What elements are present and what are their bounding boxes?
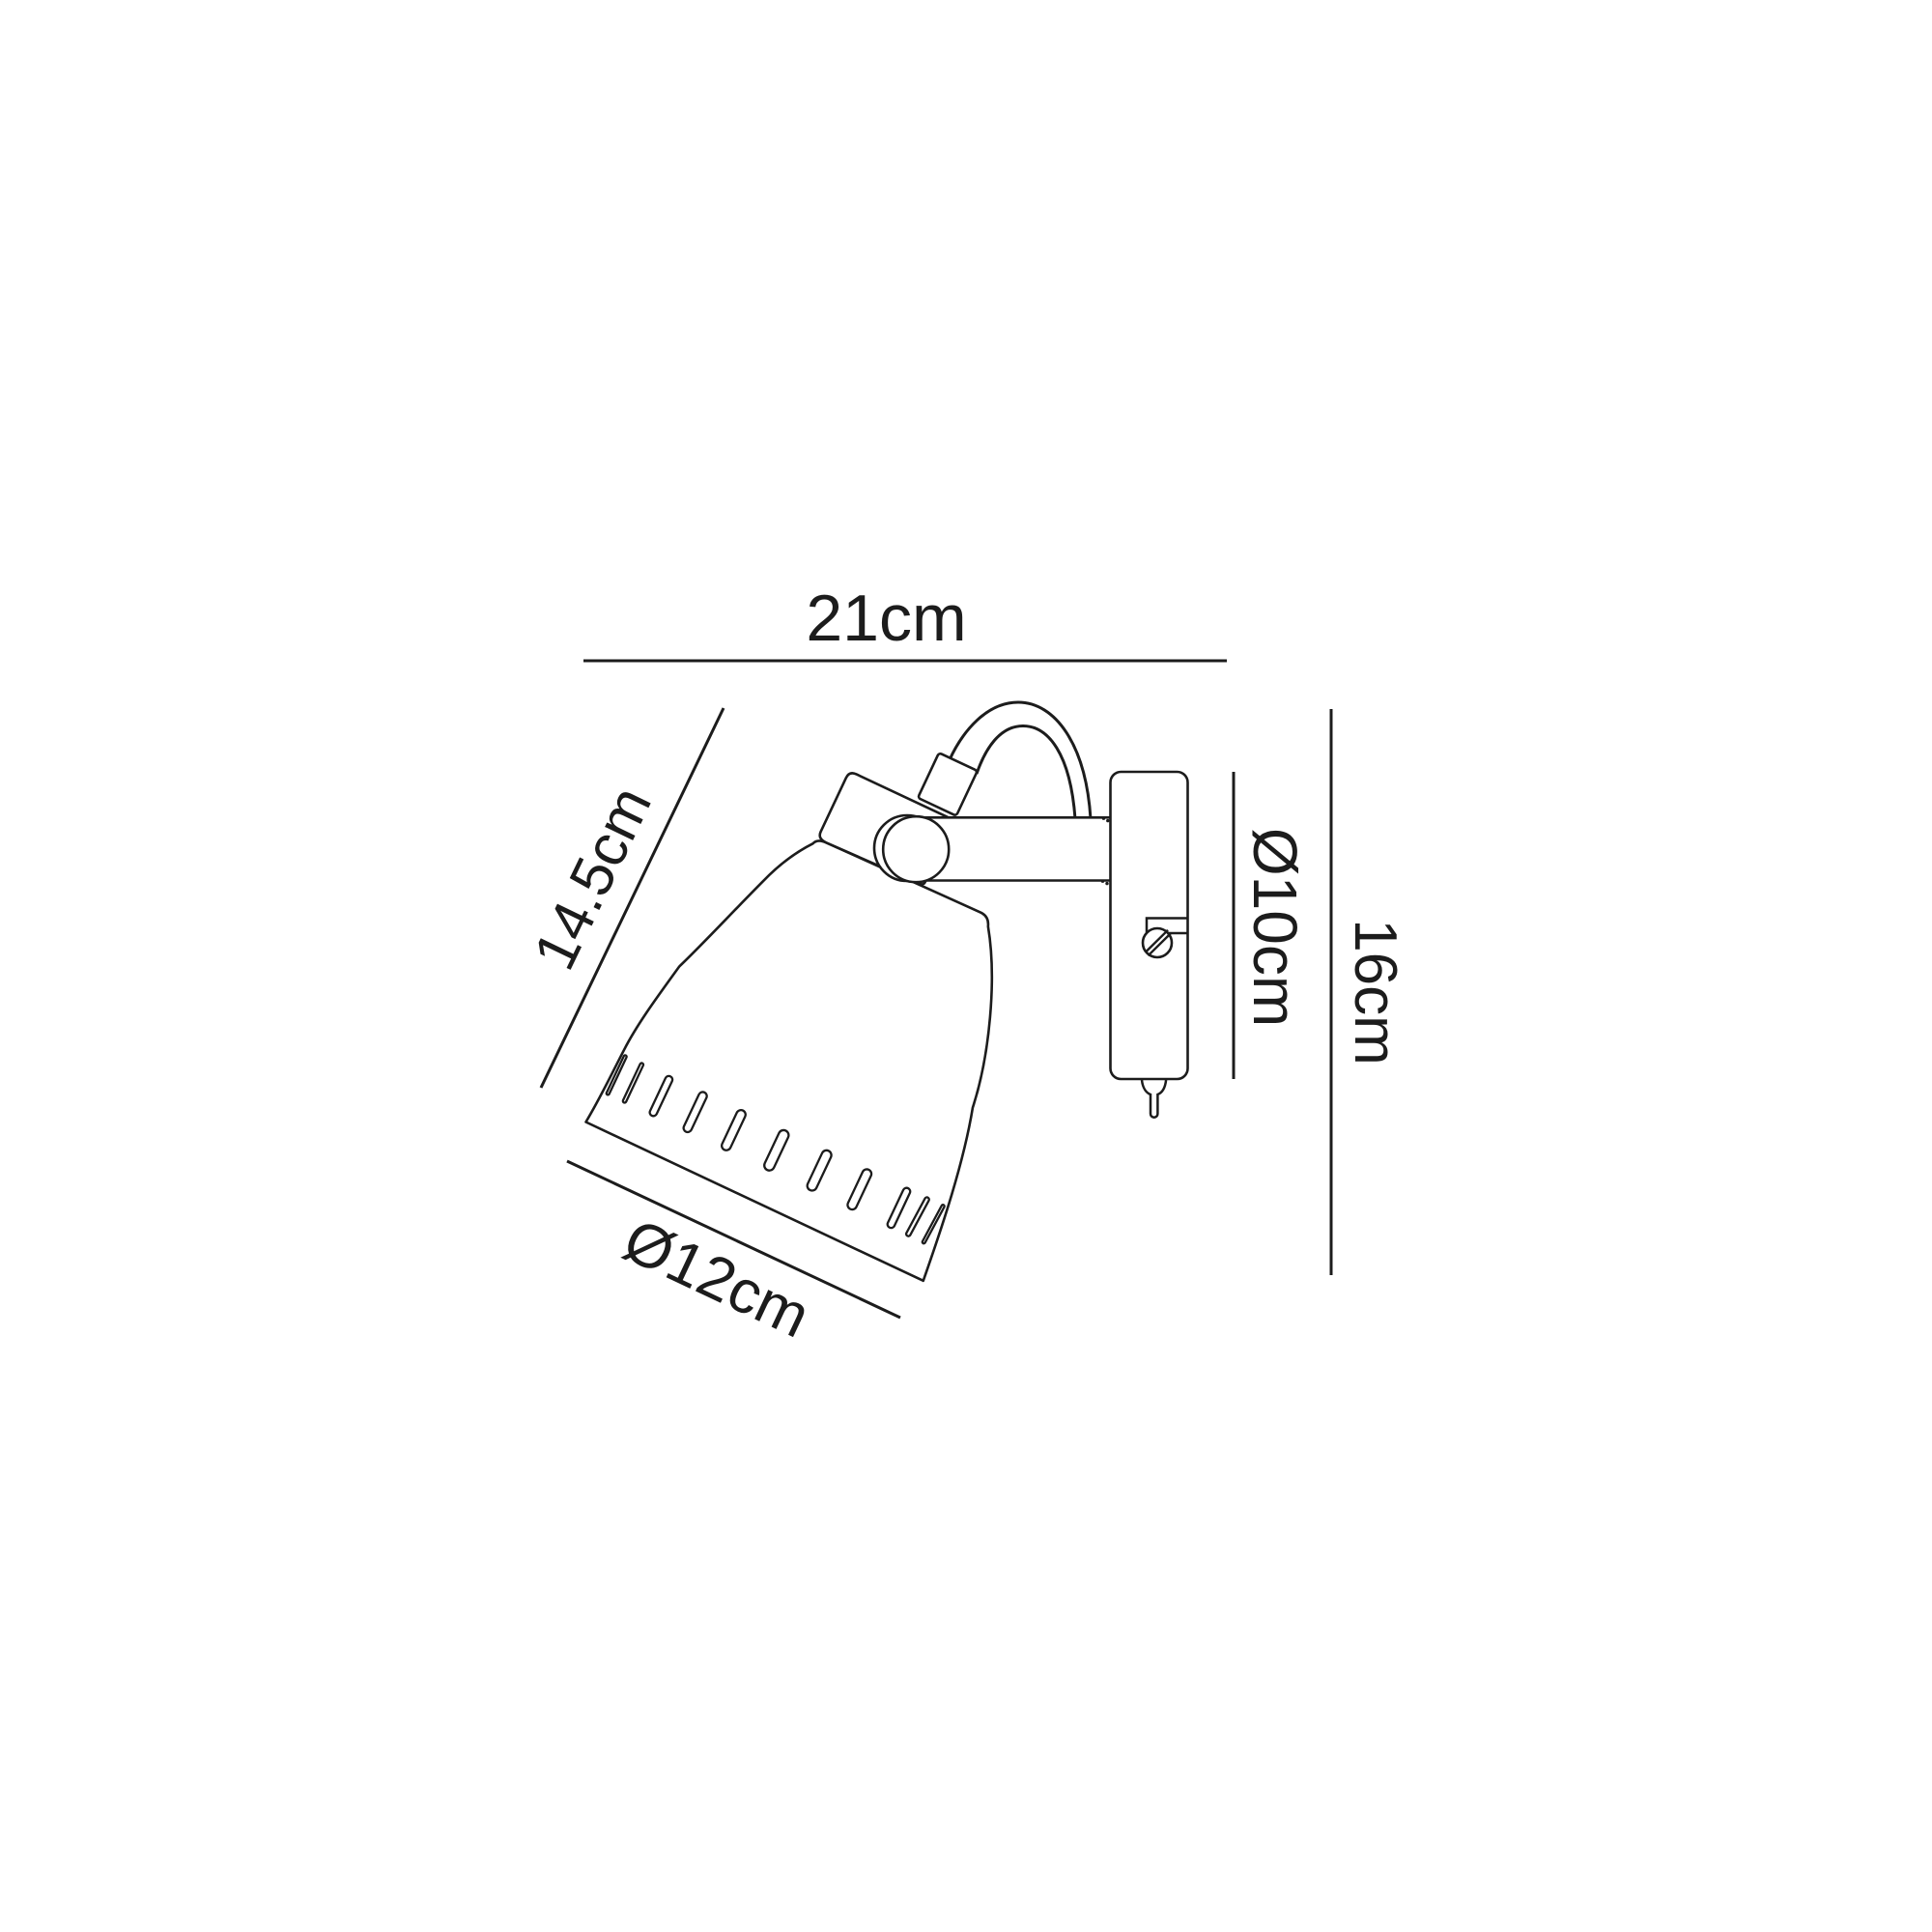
svg-text:21cm: 21cm (806, 582, 966, 655)
svg-text:Ø10cm: Ø10cm (1240, 828, 1310, 1027)
svg-text:16cm: 16cm (1342, 919, 1408, 1065)
